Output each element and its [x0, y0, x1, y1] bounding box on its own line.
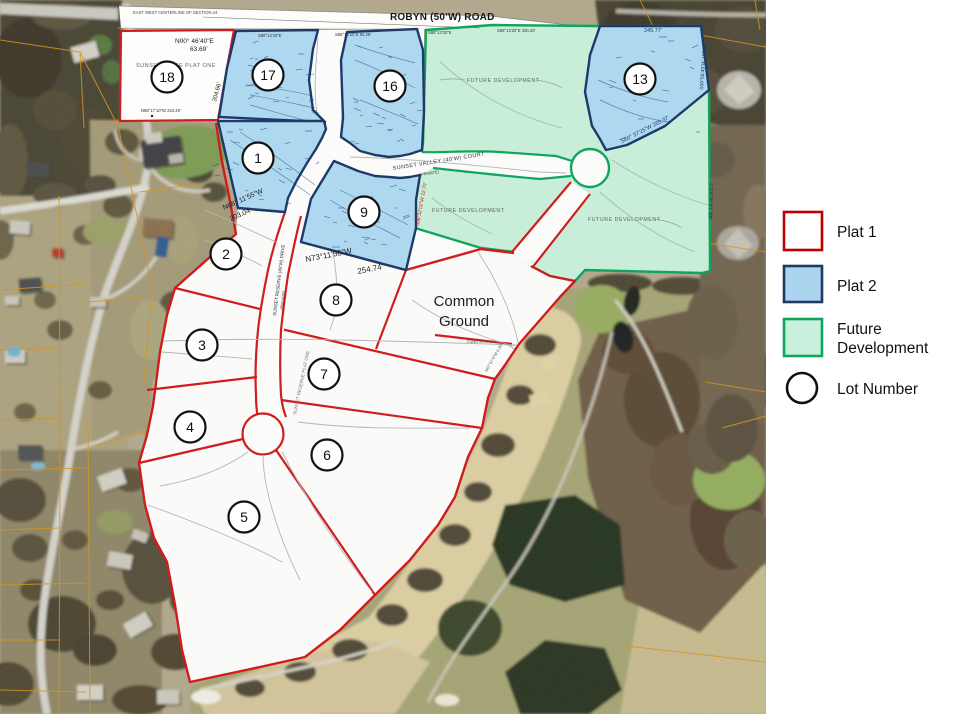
- svg-text:Development: Development: [837, 340, 929, 357]
- svg-text:Future: Future: [837, 321, 882, 338]
- svg-text:6: 6: [323, 447, 331, 463]
- svg-text:S88°13’20”E 430.43’: S88°13’20”E 430.43’: [497, 28, 536, 33]
- svg-text:Lot Number: Lot Number: [837, 381, 918, 398]
- svg-text:FUND STONE: FUND STONE: [467, 339, 493, 344]
- svg-text:Common: Common: [434, 293, 495, 310]
- svg-text:ROBYN (50’W) ROAD: ROBYN (50’W) ROAD: [390, 12, 495, 23]
- svg-text:Plat 2: Plat 2: [837, 278, 877, 295]
- svg-text:S88°13’20”E: S88°13’20”E: [428, 30, 452, 35]
- svg-text:N88°17’10”W 224.49’: N88°17’10”W 224.49’: [141, 108, 181, 113]
- svg-text:16: 16: [382, 78, 398, 94]
- svg-text:18: 18: [159, 69, 175, 85]
- svg-text:7: 7: [320, 366, 328, 382]
- svg-text:8: 8: [332, 292, 340, 308]
- svg-text:EAST WEST CENTERLINE OF SECTIO: EAST WEST CENTERLINE OF SECTION 24: [133, 10, 218, 15]
- svg-text:17: 17: [260, 67, 276, 83]
- svg-text:FUTURE DEVELOPMENT: FUTURE DEVELOPMENT: [467, 78, 540, 84]
- svg-text:4: 4: [186, 419, 194, 435]
- svg-text:S88°13’20”E 94.28’: S88°13’20”E 94.28’: [335, 32, 371, 37]
- svg-text:5: 5: [240, 509, 248, 525]
- svg-text:13: 13: [632, 71, 648, 87]
- svg-text:Plat 1: Plat 1: [837, 224, 877, 241]
- svg-text:1: 1: [254, 150, 262, 166]
- svg-text:N00° 46’40”E: N00° 46’40”E: [175, 37, 214, 45]
- svg-text:Ground: Ground: [439, 313, 489, 330]
- svg-text:245.77’: 245.77’: [644, 28, 662, 34]
- svg-text:63.69’: 63.69’: [190, 46, 208, 53]
- svg-text:3: 3: [198, 337, 206, 353]
- svg-text:FUTURE DEVELOPMENT: FUTURE DEVELOPMENT: [588, 217, 661, 223]
- svg-text:S88°13’20”E: S88°13’20”E: [258, 33, 282, 38]
- svg-text:9: 9: [360, 204, 368, 220]
- svg-text:2: 2: [222, 246, 230, 262]
- svg-text:FUTURE DEVELOPMENT: FUTURE DEVELOPMENT: [432, 208, 505, 214]
